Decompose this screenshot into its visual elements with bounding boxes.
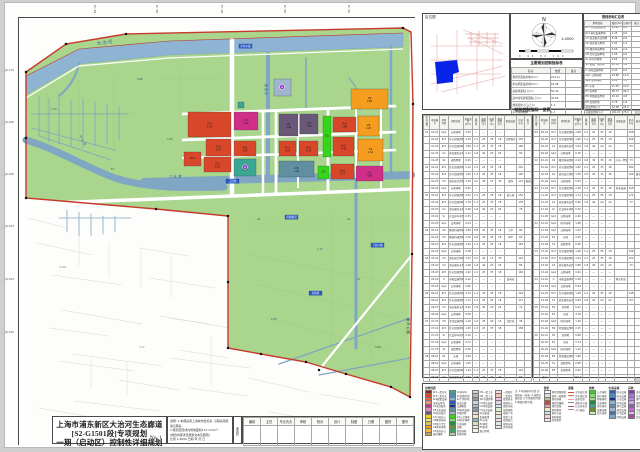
cell: 0.38 xyxy=(573,277,583,284)
indicator-row: 启动区建设用地(hm²)52.08 xyxy=(512,81,582,88)
cell: 公共绿地 xyxy=(558,228,573,235)
cell xyxy=(565,81,581,88)
legend-group: 绿地公共绿地防护绿地附属绿地生态林地滨水绿带苗圃花圃街头绿地 xyxy=(589,386,607,436)
cell: 公共绿地 xyxy=(448,249,463,256)
cell: 18 xyxy=(495,242,504,249)
cell xyxy=(504,354,517,361)
cell: — xyxy=(606,270,615,277)
parcel-row: 01-02Rr3住宅组团用地2.351.2253518社区服务235 xyxy=(424,137,532,144)
cell: Gp1 xyxy=(549,228,558,235)
cell xyxy=(635,144,640,151)
cell: — xyxy=(488,333,496,340)
signature-header-cell: 图别 xyxy=(380,418,397,426)
parcel-value: 1.86 xyxy=(342,126,348,129)
cell: — xyxy=(479,158,488,165)
cell: 商业服务业用地 xyxy=(448,207,463,214)
parcel-row: 06-04Gp1公共绿地0.58———— xyxy=(424,312,532,319)
cell: 210 xyxy=(517,165,525,172)
figure-code: 9-260 xyxy=(59,265,67,269)
cell: 35 xyxy=(488,200,496,207)
indicator-table-title: 主要规划控制指标表 xyxy=(511,60,582,67)
signature-vertical-label: 会签栏 xyxy=(233,416,242,444)
col-header: 地块编号 xyxy=(540,116,550,130)
cell: E1 xyxy=(549,340,558,347)
cell: 30 xyxy=(589,158,598,165)
cell: 规划范围总用地(hm²) xyxy=(512,74,551,81)
cell xyxy=(524,361,531,368)
indicator-row: 规划范围总用地(hm²)213.11 xyxy=(512,74,582,81)
cell: 0.92 xyxy=(573,368,583,375)
signature-cell xyxy=(244,426,261,446)
parcel-row: 12-02Gp1公共绿地1.22———— xyxy=(533,228,640,235)
signature-cell xyxy=(261,426,278,446)
cell: — xyxy=(495,186,504,193)
cell: 社会停车场用地 xyxy=(558,207,573,214)
cell: 18 xyxy=(495,235,504,242)
cell: — xyxy=(495,158,504,165)
cell: 172 xyxy=(517,298,525,305)
cell xyxy=(614,242,627,249)
parcel-value: 1.64 xyxy=(285,150,291,153)
figure-code: E1 xyxy=(111,167,115,171)
cell xyxy=(635,151,640,158)
cell xyxy=(504,270,517,277)
cell: Rr3 xyxy=(440,291,449,298)
cell: E6 xyxy=(549,326,558,333)
parcel-row: 0707-01C8文化设施用地1.261.0353015文化站38 xyxy=(424,319,532,326)
cell: 24 xyxy=(495,375,504,382)
cell: Rr3 xyxy=(549,137,558,144)
cell: 15 xyxy=(598,172,606,179)
cell: — xyxy=(495,214,504,221)
cell xyxy=(524,193,531,200)
cell xyxy=(627,228,635,235)
cell: 83 xyxy=(627,144,635,151)
cell: 住宅组团用地 xyxy=(558,165,573,172)
cell: — xyxy=(598,312,606,319)
cell: — xyxy=(589,305,598,312)
cell: — xyxy=(589,242,598,249)
cell xyxy=(524,340,531,347)
road-name-text: 三灶港 xyxy=(229,179,237,183)
cell: 25 xyxy=(479,298,488,305)
cell xyxy=(504,200,517,207)
cell: 40 xyxy=(589,200,598,207)
cell: — xyxy=(488,186,496,193)
parcel-row: 16-03Gp2防护绿地1.12———— xyxy=(533,347,640,354)
legend-color-chip xyxy=(449,432,456,437)
cell: 30 xyxy=(495,179,504,186)
cell xyxy=(614,214,627,221)
parcel-row: 07-05S1道路用地0.40———— xyxy=(424,347,532,354)
cell: 35 xyxy=(488,235,496,242)
cell: 1.72 xyxy=(463,298,473,305)
parcel-row: 01-05S1道路用地0.45———— xyxy=(424,158,532,165)
cell: 13-03 xyxy=(540,263,550,270)
cell: 住宅组团用地 xyxy=(558,193,573,200)
cell: 2.08 xyxy=(573,130,583,137)
cell: 住宅组团用地 xyxy=(448,144,463,151)
cell: 1.44 xyxy=(463,368,473,375)
legend-item: 其他控制 xyxy=(495,425,513,429)
cell: 20 xyxy=(488,263,496,270)
cell: 0.64 xyxy=(573,270,583,277)
cell: 18 xyxy=(495,165,504,172)
road-name-text: 南随塘河 xyxy=(286,215,297,219)
cell: 0.68 xyxy=(573,361,583,368)
cell: 02-02 xyxy=(430,172,440,179)
cell xyxy=(614,228,627,235)
cell: 1.86 xyxy=(463,144,473,151)
cell: — xyxy=(479,340,488,347)
cell: — xyxy=(606,368,615,375)
boundary-marker xyxy=(409,396,411,398)
cell: 64 xyxy=(627,298,635,305)
cell: 1.78 xyxy=(463,200,473,207)
cell xyxy=(627,340,635,347)
cell: 2.35 xyxy=(463,137,473,144)
cell: 11-03 xyxy=(540,200,550,207)
cell: 04-02 xyxy=(430,235,440,242)
legend-line-sample xyxy=(568,395,574,396)
cell xyxy=(635,179,640,186)
cell xyxy=(504,284,517,291)
cell: 38 xyxy=(517,319,525,326)
cell: 公共绿地 xyxy=(448,284,463,291)
cell: 24 xyxy=(606,144,615,151)
cell: — xyxy=(479,284,488,291)
cell xyxy=(635,347,640,354)
cell: 35 xyxy=(598,158,606,165)
left-tick: J9-166 xyxy=(5,173,14,176)
parcel-row: 16-04E6村镇建设用地1.86———— xyxy=(533,354,640,361)
top-coordinate-ticks: B7-84B7-86B7-88B7-90B7-92 xyxy=(5,5,425,17)
cell: 小学 xyxy=(504,228,517,235)
cell: C2 xyxy=(440,263,449,270)
cell: 235 xyxy=(517,137,525,144)
cell xyxy=(565,95,581,102)
top-tick: B7-84 xyxy=(93,5,96,16)
cell: S1 xyxy=(440,347,449,354)
cell: 5.88 xyxy=(573,333,583,340)
legend-item: 消防设施 xyxy=(609,415,627,419)
parcel-row: 合计213.11 xyxy=(533,375,640,382)
cell xyxy=(524,242,531,249)
cell: 18 xyxy=(495,228,504,235)
cell xyxy=(524,305,531,312)
cell: 住宅组团用地 xyxy=(558,291,573,298)
cell xyxy=(504,172,517,179)
cell xyxy=(614,326,627,333)
cell: 水域 xyxy=(558,312,573,319)
cell: 86 xyxy=(517,263,525,270)
cell: 1.66 xyxy=(573,137,583,144)
cell: 252 xyxy=(517,193,525,200)
cell: 55.40 xyxy=(550,88,565,95)
cell xyxy=(524,326,531,333)
cell: 0.66 xyxy=(463,284,473,291)
cell: 住宅组团用地 xyxy=(448,165,463,172)
cell: C2 xyxy=(440,207,449,214)
cell: — xyxy=(495,347,504,354)
legend-item-label: 街头绿地 xyxy=(597,411,607,415)
cell: 02-04 xyxy=(430,186,440,193)
cell xyxy=(635,214,640,221)
cell: 商业服务业用地 xyxy=(448,263,463,270)
parcel-row: 12-04S1道路用地0.56———— xyxy=(533,242,640,249)
legend-color-chip xyxy=(609,414,616,419)
cell: 01-02 xyxy=(430,137,440,144)
cell: — xyxy=(488,340,496,347)
legend-notes: 注: 1.地块编号详见 控制指标一览表; 2.道路红线宽度 以专项规划为准; 3… xyxy=(515,390,542,404)
location-map-box: 区位图 xyxy=(422,13,510,110)
cell: 07-01 xyxy=(430,319,440,326)
cell: 商业服务业用地 xyxy=(558,144,573,151)
cell xyxy=(627,207,635,214)
signature-cell xyxy=(329,426,346,446)
cell: 中学 xyxy=(504,235,517,242)
parcel-row: 13-04Gp1公共绿地0.64———— xyxy=(533,270,640,277)
col-header: 比例(%) xyxy=(622,21,632,27)
cell xyxy=(635,368,640,375)
cell: 0.40 xyxy=(463,347,473,354)
parcel-row: 10-03Cb商办混合用地1.362.0451530109兼容商业 xyxy=(533,172,640,179)
cell: 05-02 xyxy=(430,263,440,270)
boundary-marker xyxy=(65,43,67,45)
cell: 15-04 xyxy=(540,326,550,333)
cell: 03-03 xyxy=(430,207,440,214)
cell: 35 xyxy=(488,298,496,305)
cell xyxy=(635,130,640,137)
cell: — xyxy=(589,312,598,319)
parcel-row: 15-02E1水域3.18———— xyxy=(533,312,640,319)
cell: Gp1 xyxy=(440,284,449,291)
cell: — xyxy=(479,361,488,368)
cell: S1 xyxy=(440,158,449,165)
cell: — xyxy=(606,347,615,354)
cell xyxy=(504,242,517,249)
cell: 40 xyxy=(479,263,488,270)
cell: 30 xyxy=(495,256,504,263)
cell xyxy=(517,186,525,193)
cell xyxy=(524,354,531,361)
signature-header-cell: 图号 xyxy=(397,418,414,426)
cell xyxy=(517,284,525,291)
parcel-row: 15-03Gp2防护绿地1.46———— xyxy=(533,319,640,326)
cell: — xyxy=(488,214,496,221)
cell: 109 xyxy=(627,172,635,179)
cell: 35 xyxy=(488,270,496,277)
cell: 道路用地 xyxy=(558,242,573,249)
cell: 0.80 xyxy=(573,298,583,305)
cell xyxy=(635,375,640,382)
cell: 道路用地 xyxy=(448,347,463,354)
cell xyxy=(635,312,640,319)
parcel-row: 13-02Rr3住宅组团用地1.541.2253518154 xyxy=(533,256,640,263)
cell: 住宅组团用地 xyxy=(558,186,573,193)
cell: 05-03 xyxy=(430,270,440,277)
cell: — xyxy=(606,361,615,368)
cell: 30 xyxy=(606,172,615,179)
cell: 07-02 xyxy=(430,326,440,333)
parcel-row: 14-04C2商业服务业用地0.801.840202464 xyxy=(533,298,640,305)
signature-cell xyxy=(278,426,295,446)
parcel-row: 13-03C2商业服务业用地0.881.840202470 xyxy=(533,263,640,270)
cell: E2 xyxy=(549,333,558,340)
compass-rose xyxy=(532,23,556,47)
parcel-code: G1 xyxy=(325,134,329,138)
cell: 1.96 xyxy=(573,249,583,256)
cell xyxy=(635,263,640,270)
parcel-row: 11-04Sc社会停车场用地0.32———— xyxy=(533,207,640,214)
cell: Sc xyxy=(440,333,449,340)
cell: 0.92 xyxy=(463,305,473,312)
parcel-row: 03-05Gp1公共绿地0.54———— xyxy=(424,221,532,228)
legend-group: 现状现状保留建筑现状一般建筑现状简屋规划范围线现状道路现状晒场现状水面拆除建筑其… xyxy=(544,386,566,436)
cell: 35 xyxy=(598,256,606,263)
cell xyxy=(635,228,640,235)
cell: — xyxy=(606,228,615,235)
cell: 公共绿地 xyxy=(448,186,463,193)
cell: 防护绿地 xyxy=(558,347,573,354)
cell: Rr3 xyxy=(549,193,558,200)
cell: 35 xyxy=(479,319,488,326)
cell: 1.64 xyxy=(463,242,473,249)
cell: 35 xyxy=(488,193,496,200)
indicator-row: 总建筑面积(万m²)55.40 xyxy=(512,88,582,95)
cell xyxy=(614,368,627,375)
figure-code: 0.45 xyxy=(167,137,173,141)
scanned-plan-sheet: { "colors":{ "land":"#a9d58d","river":"#… xyxy=(0,0,640,452)
cell xyxy=(524,235,531,242)
summary-table-box: 规划用地汇总表 用地性质面积(hm²)比例(%)备注Rr3 住宅组团用地18.4… xyxy=(583,13,640,110)
cell xyxy=(504,312,517,319)
notes-block: 说明: 1.本图采用上海城市坐标系, 高程采用吴淞高程系;2.规划范围线内用地面… xyxy=(167,416,233,444)
legend-color-chip xyxy=(544,418,551,423)
cell: 住宅组团用地 xyxy=(448,298,463,305)
cell: 166 xyxy=(627,137,635,144)
cell: 09-04 xyxy=(540,151,550,158)
cell: — xyxy=(598,347,606,354)
boundary-marker xyxy=(318,369,320,371)
cell: Cb xyxy=(549,172,558,179)
cell: — xyxy=(598,214,606,221)
cell: — xyxy=(598,242,606,249)
cell xyxy=(524,375,531,382)
cell: C2 xyxy=(440,375,449,382)
signature-header-cell: 审核 xyxy=(295,418,312,426)
cell: 住宅组团用地 xyxy=(448,368,463,375)
cell: — xyxy=(606,179,615,186)
cell: 18 xyxy=(606,193,615,200)
cell: — xyxy=(606,277,615,284)
legend-group: 注: 1.地块编号详见 控制指标一览表; 2.道路红线宽度 以专项规划为准; 3… xyxy=(515,386,542,436)
parcel-row: 06-02Rr3住宅组团用地1.721.2253518172 xyxy=(424,298,532,305)
parcel-row: 0404-01C6教育科研用地2.860.8303518小学86 xyxy=(424,228,532,235)
cell: E8 xyxy=(549,368,558,375)
cell: 防护绿地 xyxy=(558,221,573,228)
cell: 35 xyxy=(488,242,496,249)
cell xyxy=(524,319,531,326)
cell: 1.04 xyxy=(573,144,583,151)
cell: S1 xyxy=(549,361,558,368)
parcel-row: 08-03Rr3住宅组团用地1.441.2253518144 xyxy=(424,368,532,375)
cell xyxy=(614,221,627,228)
cell: 18 xyxy=(495,298,504,305)
figure-code: G1 xyxy=(257,217,261,221)
cell xyxy=(635,305,640,312)
cell xyxy=(614,263,627,270)
cell: 12-02 xyxy=(540,228,550,235)
cell: Gp1 xyxy=(440,249,449,256)
cell: 06-04 xyxy=(430,312,440,319)
col-header: 配套设施 xyxy=(504,116,517,130)
cell xyxy=(627,347,635,354)
cell xyxy=(627,270,635,277)
cell: — xyxy=(488,354,496,361)
cell: 158 xyxy=(517,326,525,333)
legend-box: 用地性质Rr1一类住宅Rr3三类住宅Rr4配套设施征收安置房C2商业服务C8文化… xyxy=(422,383,640,450)
parcel-row: 01-04C2商业服务业用地1.121.840202490 xyxy=(424,151,532,158)
figure-code: 0.68 xyxy=(375,345,381,349)
cell: — xyxy=(495,277,504,284)
legend-item: 农林用地 xyxy=(449,432,470,436)
cell: Gp1 xyxy=(440,361,449,368)
cell: 18 xyxy=(495,326,504,333)
cell: 40 xyxy=(589,298,598,305)
left-tick: J9-164 xyxy=(5,225,14,228)
cell: — xyxy=(488,249,496,256)
cell xyxy=(614,333,627,340)
cell: — xyxy=(479,354,488,361)
cell: 40 xyxy=(479,375,488,382)
legend-item: 社区服务站 xyxy=(628,415,640,419)
cell: Rr3 xyxy=(440,270,449,277)
cell: 菜场 xyxy=(504,179,517,186)
boundary-marker xyxy=(260,353,262,355)
legend-color-chip xyxy=(628,414,635,419)
parcel-row: 0606-01Rr3住宅组团用地2.241.2253518224 xyxy=(424,291,532,298)
cell: 13-02 xyxy=(540,256,550,263)
cell: 1.40 xyxy=(463,179,473,186)
cell: 07-03 xyxy=(430,333,440,340)
cell xyxy=(524,186,531,193)
cell xyxy=(627,284,635,291)
road-name-text: 沪南公路 xyxy=(240,44,251,48)
col-header: 用地代码 xyxy=(549,116,558,130)
cell: 2.28 xyxy=(573,186,583,193)
left-tick: J9-170 xyxy=(5,69,14,72)
cell xyxy=(589,375,598,382)
cell: 20 xyxy=(598,298,606,305)
big-table-title: 地块控制指标一览表 xyxy=(422,106,640,114)
cell: 九年一贯制 xyxy=(614,158,627,165)
cell xyxy=(614,207,627,214)
parcel-row: 07-03Sc社会停车场用地0.30———— xyxy=(424,333,532,340)
cell: 住宅组团用地 xyxy=(558,249,573,256)
cell: 村镇建设用地 xyxy=(558,326,573,333)
cell: — xyxy=(589,151,598,158)
cell: 112 xyxy=(517,179,525,186)
cell: 1.12 xyxy=(463,151,473,158)
cell: Rr3 xyxy=(440,165,449,172)
cell xyxy=(524,312,531,319)
signature-cell xyxy=(312,426,329,446)
cell: — xyxy=(495,354,504,361)
legend-item-label: 娱乐康体 xyxy=(433,432,443,436)
cell: 05-05 xyxy=(430,284,440,291)
cell: 182 xyxy=(627,165,635,172)
